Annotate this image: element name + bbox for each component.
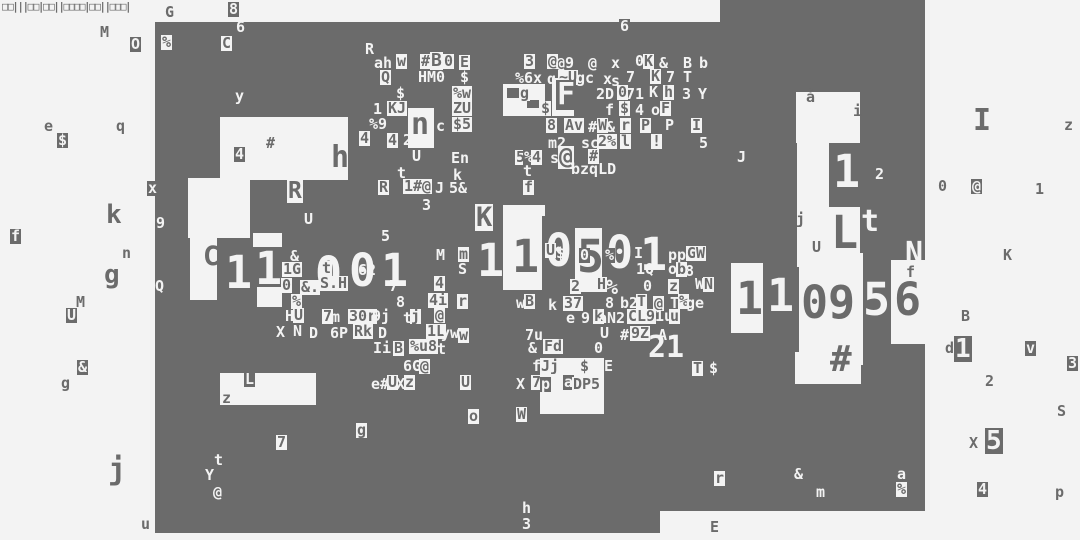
glyph: h xyxy=(331,143,349,173)
glyph: R xyxy=(287,180,303,203)
glyph: 4 xyxy=(434,276,445,291)
glyph: L xyxy=(244,372,255,387)
glyph: P xyxy=(665,118,674,133)
glitch-canvas: □□|||□□|□□||□□□□|□□||□□□| G86MO%CRye$q6a… xyxy=(0,0,1080,540)
bg-block-dark xyxy=(155,511,660,533)
glyph: 1 xyxy=(954,336,972,362)
glyph: ZU xyxy=(452,101,472,116)
glyph: g xyxy=(61,376,70,391)
glyph: 4 xyxy=(359,131,370,146)
glyph: 7 xyxy=(626,70,635,85)
glyph: 3 xyxy=(422,198,431,213)
glyph: 1 xyxy=(767,273,794,318)
glyph: 0 xyxy=(938,179,947,194)
glyph: U xyxy=(304,212,313,227)
glyph: K xyxy=(649,85,658,100)
glyph: i xyxy=(853,104,862,119)
glyph: bzqLD xyxy=(571,162,616,177)
glyph: k xyxy=(106,202,122,228)
glyph: 5 xyxy=(863,277,890,322)
glyph: 7 xyxy=(276,435,287,450)
glyph: 8 xyxy=(396,295,405,310)
glyph: 2% xyxy=(597,134,617,149)
glyph: w xyxy=(396,54,407,69)
glyph: z xyxy=(1064,118,1073,133)
glyph: C xyxy=(203,243,219,270)
glyph: HM0 xyxy=(418,70,445,85)
glyph: 1 xyxy=(512,234,539,279)
glyph: g xyxy=(104,262,120,288)
glyph: % xyxy=(896,482,907,497)
glyph: n xyxy=(122,246,131,261)
glyph: 8 xyxy=(546,118,557,133)
glyph: gc xyxy=(576,71,594,86)
glyph: h xyxy=(663,85,674,100)
glyph: 5 xyxy=(381,229,390,244)
glyph: %9 xyxy=(369,117,387,132)
glyph: %u8 xyxy=(409,339,438,354)
glyph: N xyxy=(703,277,714,292)
glyph: z xyxy=(404,375,415,390)
glyph: u xyxy=(669,309,680,324)
glyph: K xyxy=(475,204,493,231)
glyph: t xyxy=(214,453,223,468)
glyph: Q xyxy=(155,279,164,294)
glyph: 1#@ xyxy=(403,179,432,194)
glyph: 2 xyxy=(985,374,994,389)
glyph: z xyxy=(668,279,679,294)
glyph: 5& xyxy=(449,181,467,196)
glyph: C xyxy=(221,36,232,51)
glyph: R xyxy=(365,42,374,57)
glyph: U xyxy=(812,240,821,255)
glyph: Rk xyxy=(353,324,373,339)
glyph: E xyxy=(710,520,719,535)
glyph: 5 xyxy=(985,428,1003,454)
glyph: DP5 xyxy=(572,377,601,392)
glyph: 6 xyxy=(236,20,245,35)
glyph: S xyxy=(458,262,467,277)
glyph: m xyxy=(816,485,825,500)
glyph: x xyxy=(611,56,620,71)
glyph: 6 xyxy=(894,277,921,322)
glyph: ge xyxy=(686,296,704,311)
glyph: W xyxy=(516,407,527,422)
glyph: 4 xyxy=(977,482,988,497)
glyph: 1 xyxy=(477,238,504,283)
glyph: 9j xyxy=(372,309,390,324)
glyph: J xyxy=(737,150,746,165)
glyph: CL9 xyxy=(627,309,656,324)
glyph: $ xyxy=(460,70,469,85)
glyph: r xyxy=(620,118,631,133)
glyph: En xyxy=(451,151,469,166)
glyph: M xyxy=(76,295,85,310)
glyph: u xyxy=(141,517,150,532)
glyph: 1Q xyxy=(636,262,654,277)
glyph: 0 xyxy=(281,278,292,293)
glyph: t xyxy=(437,342,446,357)
glyph: KJ xyxy=(387,101,407,116)
glyph: $ xyxy=(579,359,590,374)
glyph: Jj xyxy=(540,359,560,374)
glyph: $ xyxy=(709,361,718,376)
glyph: m xyxy=(331,310,340,325)
glyph: p xyxy=(1055,485,1064,500)
glyph: 9 xyxy=(156,216,165,231)
glyph: # xyxy=(266,136,275,151)
glyph: Av xyxy=(564,118,584,133)
glyph: U xyxy=(460,375,471,390)
glyph: 2 xyxy=(570,279,581,294)
glyph: R xyxy=(378,180,389,195)
glyph: 4 xyxy=(387,133,398,148)
glyph: K xyxy=(1003,248,1012,263)
glyph: S xyxy=(1057,404,1066,419)
glyph: 21 xyxy=(648,333,684,363)
glyph: 6P xyxy=(330,326,348,341)
glyph: # xyxy=(588,120,597,135)
glyph: W xyxy=(695,246,706,261)
bg-block-dark xyxy=(507,88,519,98)
glyph: E xyxy=(604,359,613,374)
glyph: B xyxy=(393,341,404,356)
glyph: v xyxy=(1025,341,1036,356)
glyph: # xyxy=(830,342,852,378)
glyph: 3 xyxy=(682,87,691,102)
glyph: å xyxy=(806,90,815,105)
glyph: b xyxy=(699,56,708,71)
glyph: & xyxy=(77,360,88,375)
glyph: M xyxy=(100,25,109,40)
glyph: L xyxy=(831,210,858,255)
glyph: 1G xyxy=(282,262,302,277)
glyph: $5 xyxy=(452,117,472,132)
glyph: @ xyxy=(213,485,222,500)
glyph: & xyxy=(794,467,803,482)
glyph: O xyxy=(130,37,141,52)
glyph: 3 xyxy=(522,517,531,532)
top-left-bar-strip: □□|||□□|□□||□□□□|□□||□□□| xyxy=(2,1,130,12)
glyph: r xyxy=(714,471,725,486)
glyph: j xyxy=(796,212,805,227)
glyph: q xyxy=(547,72,556,87)
glyph: k xyxy=(548,298,557,313)
glyph: B xyxy=(961,309,970,324)
glyph: U xyxy=(545,243,556,258)
glyph: g xyxy=(519,86,530,101)
glyph: $ xyxy=(540,101,551,116)
glyph: 0 xyxy=(443,54,454,69)
glyph: Fd xyxy=(543,339,563,354)
glyph: U xyxy=(66,308,77,323)
glyph: 62 xyxy=(358,263,376,278)
bg-block-dark xyxy=(720,0,925,22)
glyph: 1 xyxy=(255,246,282,291)
glyph: 0 xyxy=(594,341,603,356)
bg-block-light xyxy=(220,373,316,405)
glyph: & xyxy=(528,341,537,356)
glyph: Q xyxy=(380,70,391,85)
glyph: T xyxy=(683,70,692,85)
glyph: j xyxy=(108,455,126,485)
glyph: J xyxy=(435,181,444,196)
glyph: 2D xyxy=(596,87,614,102)
glyph: e xyxy=(566,311,575,326)
glyph: 4 xyxy=(234,147,245,162)
glyph: $ xyxy=(619,101,630,116)
glyph: g xyxy=(356,423,367,438)
glyph: 1 xyxy=(225,250,252,295)
glyph: I xyxy=(691,118,702,133)
glyph: 8 xyxy=(685,264,694,279)
glyph: Y xyxy=(698,87,707,102)
glyph: @ xyxy=(971,179,982,194)
glyph: 6 xyxy=(619,19,630,34)
glyph: % xyxy=(161,35,172,50)
glyph: 9 xyxy=(828,280,855,325)
glyph: 2 xyxy=(875,167,884,182)
glyph: X xyxy=(969,436,978,451)
glyph: y xyxy=(235,89,244,104)
glyph: F xyxy=(660,101,671,116)
glyph: % xyxy=(604,248,615,263)
glyph: yw xyxy=(441,326,459,341)
glyph: X xyxy=(276,325,285,340)
glyph: U xyxy=(412,149,421,164)
glyph: z xyxy=(222,391,231,406)
glyph: p xyxy=(540,377,551,392)
glyph: 2 xyxy=(403,133,412,148)
glyph: 1 xyxy=(833,149,860,194)
glyph: h xyxy=(522,501,531,516)
glyph: S.H xyxy=(319,276,348,291)
glyph: U xyxy=(293,308,304,323)
glyph: 4 xyxy=(531,150,542,165)
glyph: P xyxy=(640,118,651,133)
glyph: 8 xyxy=(228,2,239,17)
glyph: T xyxy=(692,361,703,376)
glyph: @ xyxy=(434,308,445,323)
glyph: ! xyxy=(651,134,662,149)
glyph: G xyxy=(165,5,174,20)
glyph: B xyxy=(524,294,535,309)
glyph: 7 xyxy=(389,279,398,294)
glyph: f xyxy=(523,180,534,195)
glyph: o xyxy=(651,103,660,118)
glyph: N xyxy=(293,324,302,339)
glyph: f xyxy=(10,229,21,244)
glyph: Y xyxy=(205,468,214,483)
glyph: n xyxy=(410,110,430,140)
glyph: e xyxy=(44,119,53,134)
glyph: 5 xyxy=(699,136,708,151)
glyph: I xyxy=(973,106,991,136)
glyph: M xyxy=(436,248,445,263)
glyph: Ii xyxy=(373,341,391,356)
glyph: o xyxy=(468,409,479,424)
glyph: f xyxy=(906,265,915,280)
glyph: X xyxy=(516,377,525,392)
glyph: I xyxy=(634,246,643,261)
glyph: w xyxy=(458,328,469,343)
glyph: 1 xyxy=(1035,182,1044,197)
glyph: 0 xyxy=(801,280,828,325)
glyph: $ xyxy=(57,133,68,148)
glyph: r xyxy=(457,294,468,309)
glyph: 3 xyxy=(524,54,535,69)
glyph: x xyxy=(147,181,158,196)
glyph: K xyxy=(650,69,661,84)
glyph: t xyxy=(523,164,532,179)
glyph: F xyxy=(556,80,576,110)
glyph: c xyxy=(436,119,445,134)
glyph: 1 xyxy=(736,276,763,321)
glyph: 3 xyxy=(1067,356,1078,371)
glyph: 0 xyxy=(579,248,590,263)
glyph: t xyxy=(861,207,879,237)
bg-block-light xyxy=(188,178,250,238)
glyph: $ xyxy=(556,246,565,261)
glyph: @ xyxy=(419,359,430,374)
glyph: d xyxy=(945,341,954,356)
glyph: l xyxy=(620,134,631,149)
glyph: 9 xyxy=(581,311,590,326)
glyph: D xyxy=(309,326,318,341)
glyph: q xyxy=(116,119,125,134)
glyph: j xyxy=(410,309,421,324)
